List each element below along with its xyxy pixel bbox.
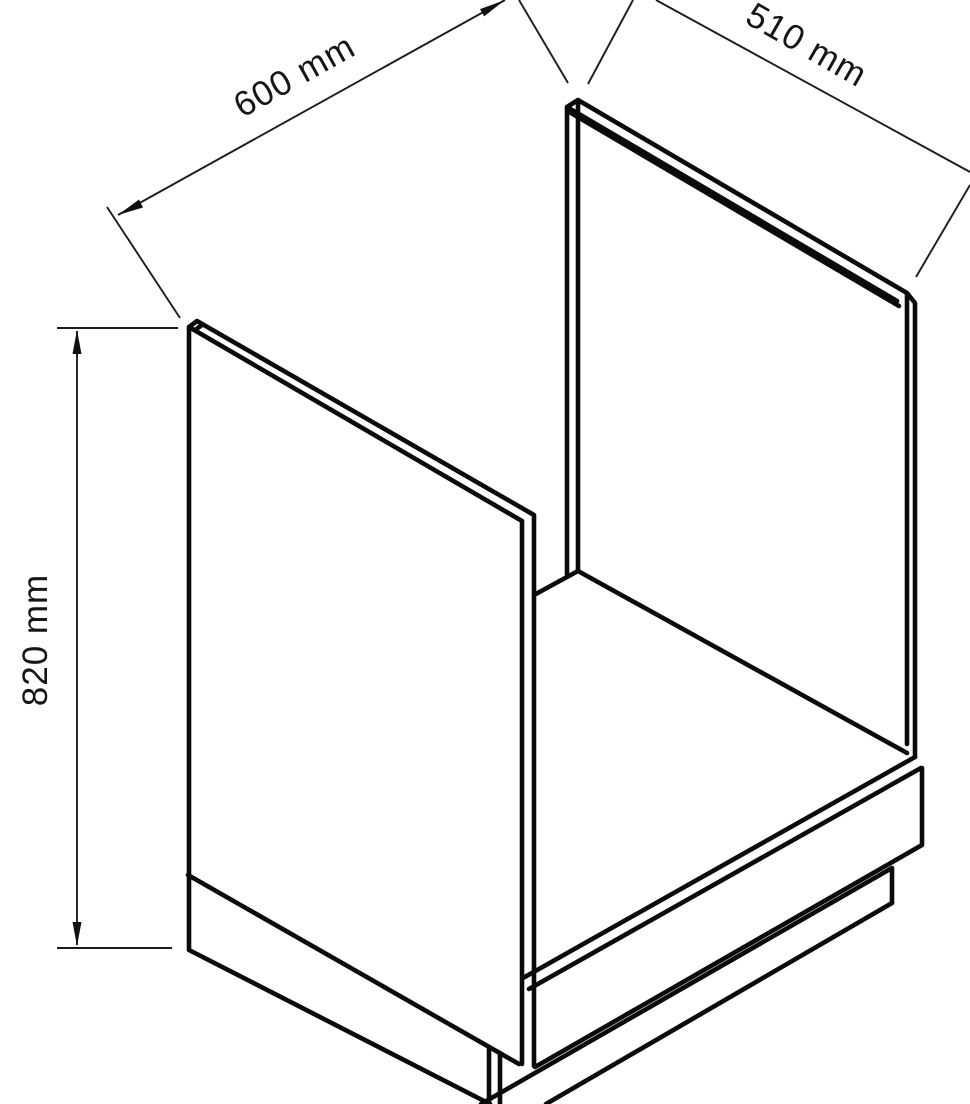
- cabinet-dimension-diagram: 600 mm 510 mm 820 mm: [0, 0, 970, 1104]
- cabinet-drawing-svg: 600 mm 510 mm 820 mm: [0, 0, 970, 1104]
- canvas-background: [0, 0, 970, 1104]
- height-dimension-label: 820 mm: [16, 574, 55, 706]
